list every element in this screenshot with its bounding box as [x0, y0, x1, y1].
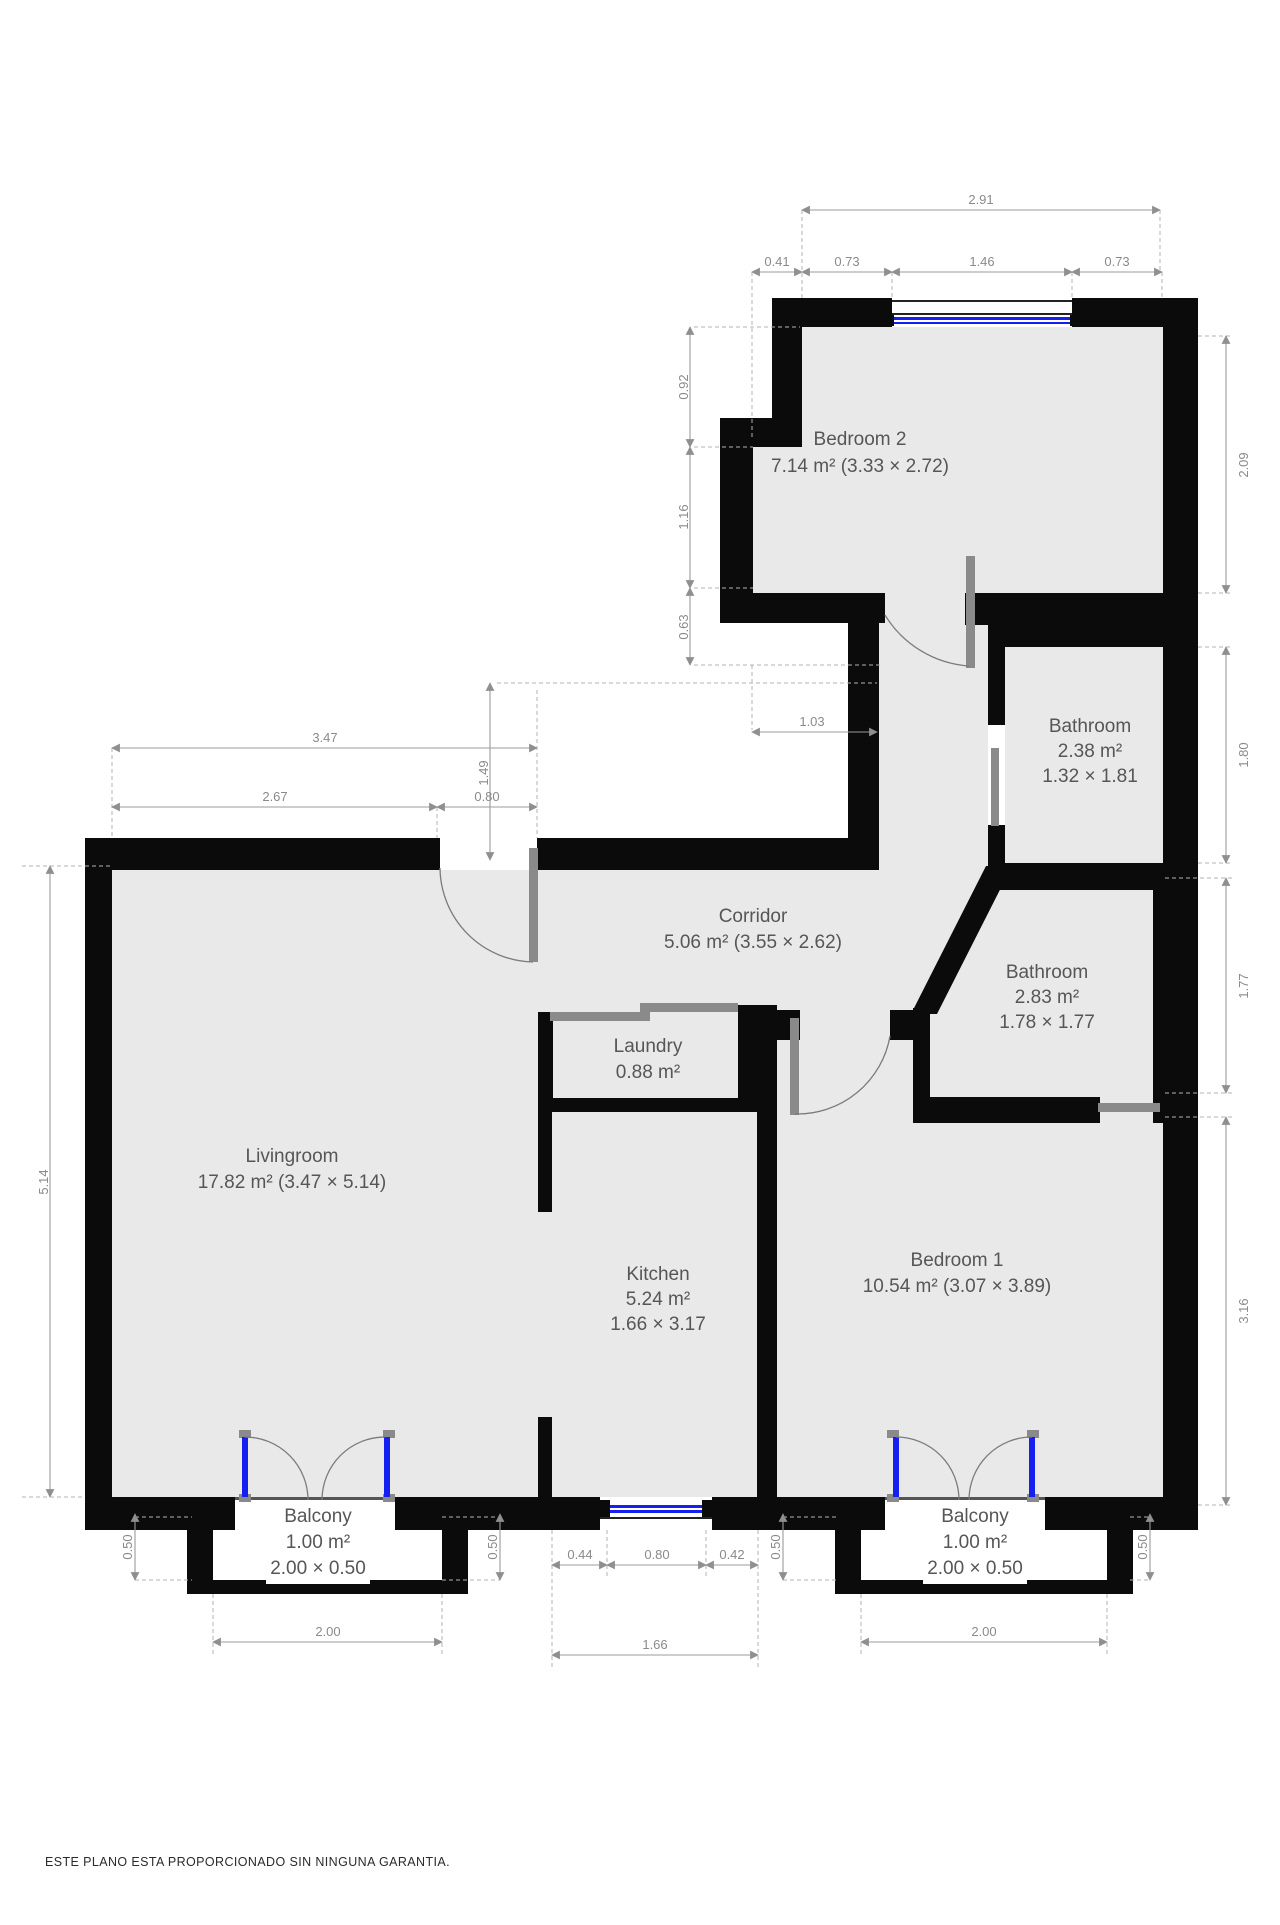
laundry-sliding-door2-icon [640, 1003, 738, 1012]
kitchen-window-icon [600, 1497, 712, 1530]
disclaimer-text: ESTE PLANO ESTA PROPORCIONADO SIN NINGUN… [45, 1855, 450, 1869]
dim-top-c: 1.46 [969, 254, 994, 269]
dim-lr-top-a: 2.67 [262, 789, 287, 804]
dim-right-c: 1.77 [1236, 973, 1251, 998]
dim-lr-top-total: 3.47 [312, 730, 337, 745]
floorplan-svg: 2.91 0.41 0.73 1.46 0.73 0.92 1.16 0.63 … [0, 0, 1280, 1920]
dim-top-b: 0.73 [834, 254, 859, 269]
dim-lr-top-b: 0.80 [474, 789, 499, 804]
bathroom-mid-sliding-door-icon [1098, 1103, 1160, 1112]
dim-right-b: 1.80 [1236, 742, 1251, 767]
dim-bal-r-width: 2.00 [971, 1624, 996, 1639]
dim-bal-l-width: 2.00 [315, 1624, 340, 1639]
dim-right-d: 3.16 [1236, 1298, 1251, 1323]
dim-bal-r-depth-l: 0.50 [768, 1534, 783, 1559]
dim-bal-l-depth-l: 0.50 [120, 1534, 135, 1559]
bathroom-top-sliding-door-icon [991, 748, 999, 826]
dim-b2-left-b: 1.16 [676, 504, 691, 529]
dim-kw-a: 0.44 [567, 1547, 592, 1562]
dim-top-d: 0.73 [1104, 254, 1129, 269]
floorplan-page: 2.91 0.41 0.73 1.46 0.73 0.92 1.16 0.63 … [0, 0, 1280, 1920]
dim-top-a: 0.41 [764, 254, 789, 269]
dim-kw-total: 1.66 [642, 1637, 667, 1652]
dim-corridor-gap: 1.03 [799, 714, 824, 729]
dim-top-total: 2.91 [968, 192, 993, 207]
dim-lr-left: 5.14 [36, 1169, 51, 1194]
dim-right-a: 2.09 [1236, 452, 1251, 477]
dim-entry-depth: 1.49 [476, 760, 491, 785]
dim-b2-left-c: 0.63 [676, 614, 691, 639]
dim-bal-r-depth-r: 0.50 [1135, 1534, 1150, 1559]
laundry-sliding-door-icon [550, 1012, 650, 1021]
dim-bal-l-depth-r: 0.50 [485, 1534, 500, 1559]
dim-kw-c: 0.42 [719, 1547, 744, 1562]
dim-b2-left-a: 0.92 [676, 374, 691, 399]
bedroom2-window-icon [886, 298, 1078, 327]
dim-kw-b: 0.80 [644, 1547, 669, 1562]
